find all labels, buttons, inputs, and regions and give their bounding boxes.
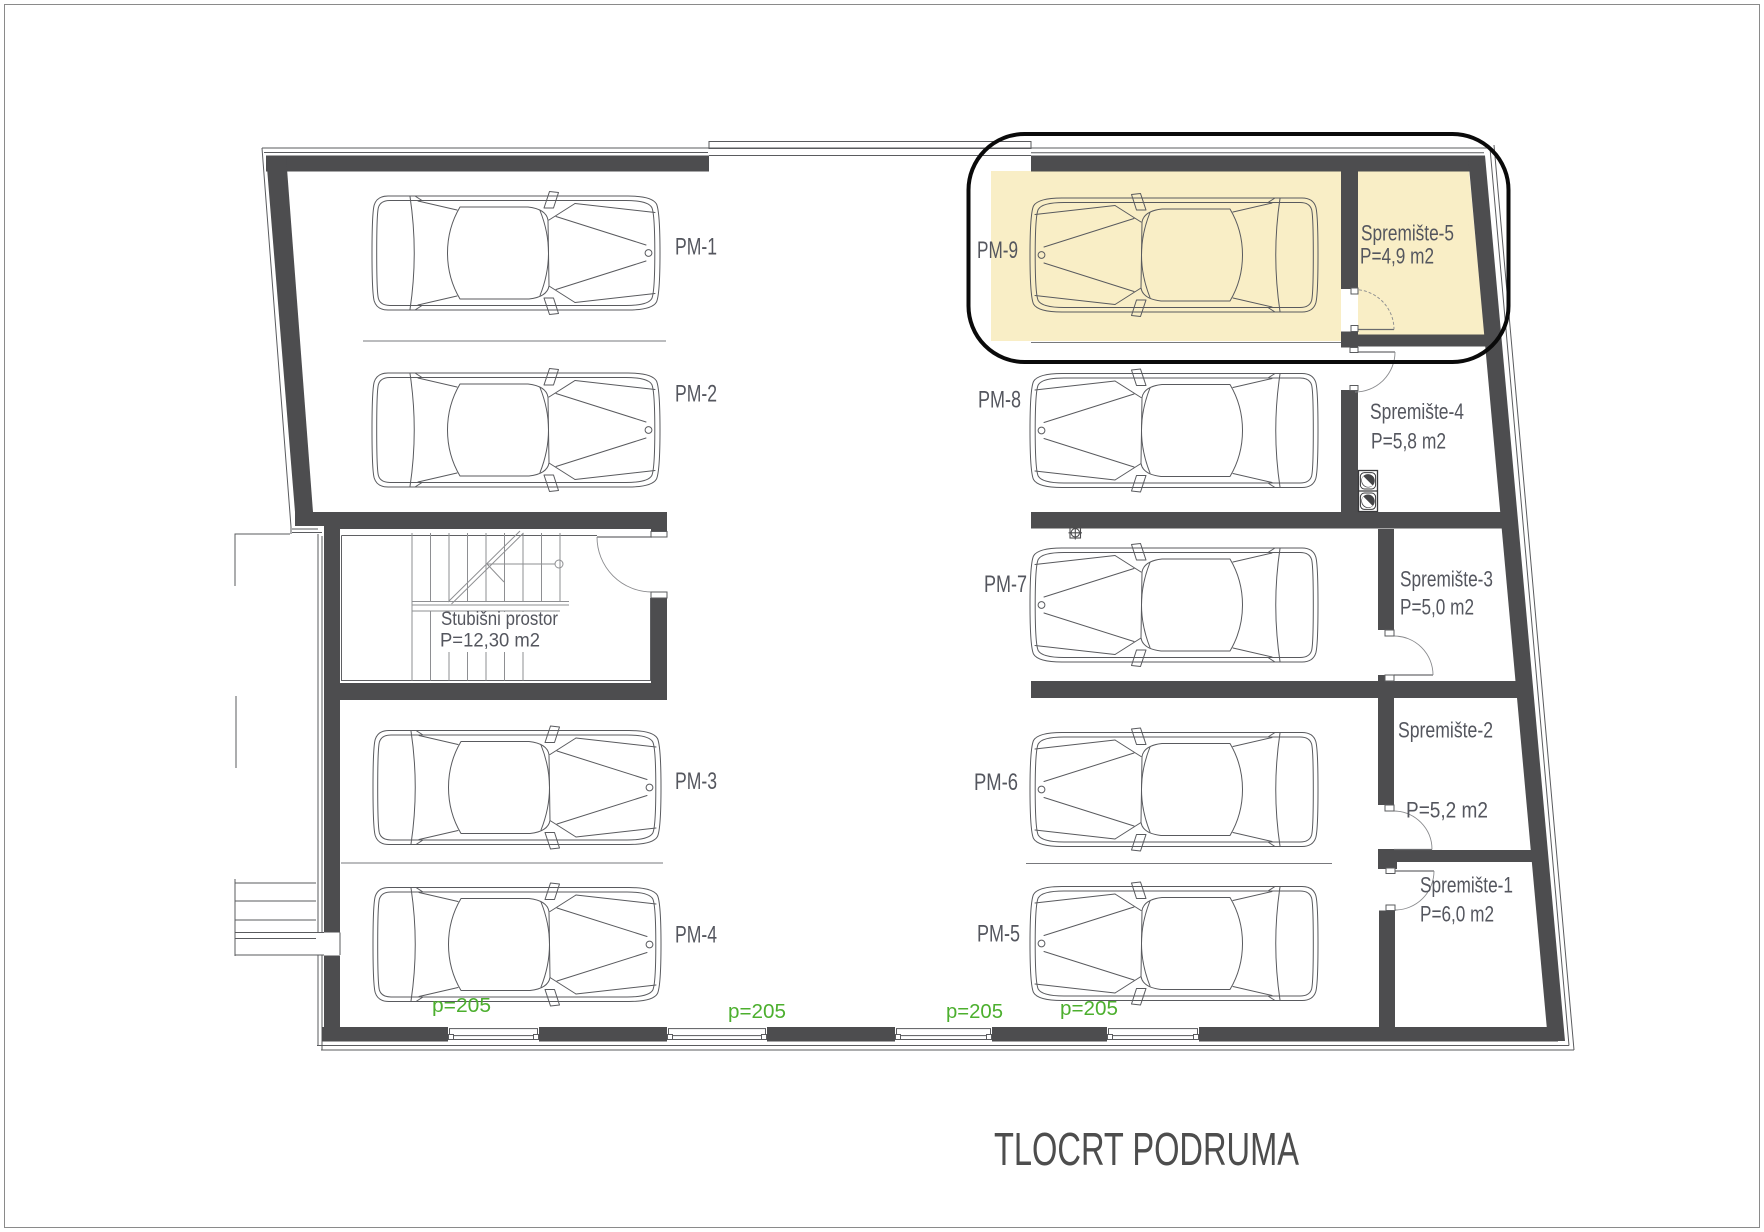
svg-text:PM-3: PM-3 xyxy=(675,768,717,795)
svg-text:Spremište-1: Spremište-1 xyxy=(1420,873,1513,898)
svg-text:p=205: p=205 xyxy=(432,995,491,1017)
svg-text:Stubišni prostor: Stubišni prostor xyxy=(441,609,559,630)
svg-text:p=205: p=205 xyxy=(728,1001,786,1023)
svg-text:PM-4: PM-4 xyxy=(675,922,717,949)
svg-text:P=12,30 m2: P=12,30 m2 xyxy=(440,631,540,652)
svg-text:PM-2: PM-2 xyxy=(675,381,717,408)
svg-text:TLOCRT PODRUMA: TLOCRT PODRUMA xyxy=(994,1123,1299,1175)
svg-text:Spremište-5: Spremište-5 xyxy=(1361,221,1454,246)
svg-text:P=5,0 m2: P=5,0 m2 xyxy=(1400,595,1474,620)
svg-text:PM-8: PM-8 xyxy=(978,387,1021,414)
svg-text:Spremište-2: Spremište-2 xyxy=(1398,718,1493,743)
svg-text:P=5,2 m2: P=5,2 m2 xyxy=(1406,798,1488,823)
svg-text:PM-7: PM-7 xyxy=(984,571,1027,598)
svg-text:PM-5: PM-5 xyxy=(977,921,1020,948)
svg-text:p=205: p=205 xyxy=(946,1001,1003,1023)
svg-text:Spremište-4: Spremište-4 xyxy=(1370,399,1464,424)
svg-text:Spremište-3: Spremište-3 xyxy=(1400,567,1493,592)
svg-text:PM-9: PM-9 xyxy=(977,237,1018,264)
svg-text:PM-1: PM-1 xyxy=(675,234,717,261)
svg-text:P=6,0 m2: P=6,0 m2 xyxy=(1420,902,1494,927)
svg-text:P=5,8 m2: P=5,8 m2 xyxy=(1371,429,1446,454)
svg-text:p=205: p=205 xyxy=(1060,998,1118,1020)
svg-text:P=4,9 m2: P=4,9 m2 xyxy=(1360,244,1434,269)
svg-text:PM-6: PM-6 xyxy=(974,769,1018,796)
